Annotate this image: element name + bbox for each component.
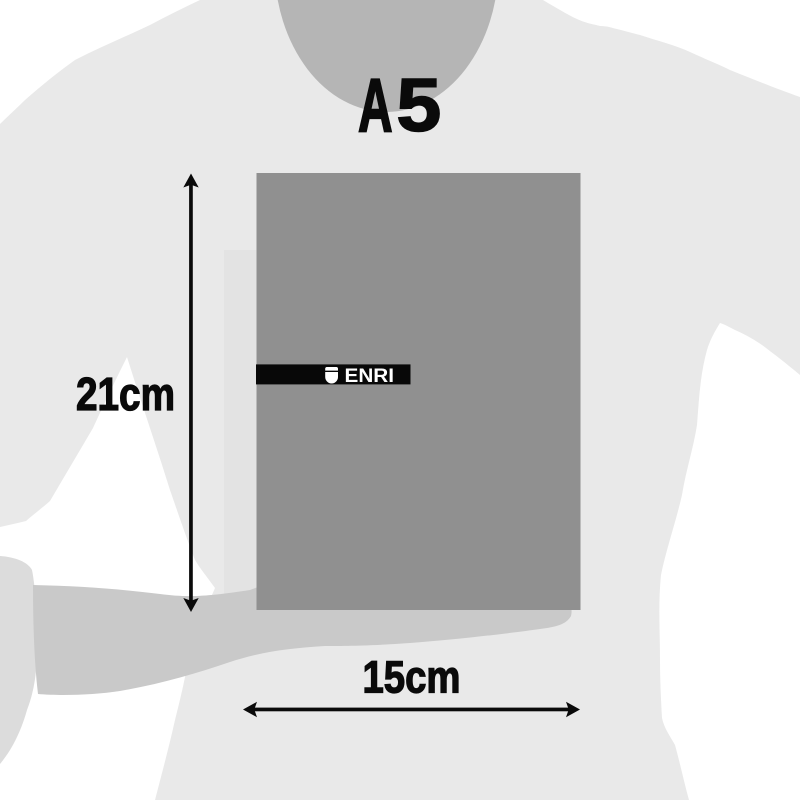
svg-text:ENRI: ENRI <box>345 365 395 387</box>
svg-text:21cm: 21cm <box>76 368 175 420</box>
svg-text:15cm: 15cm <box>363 651 461 702</box>
svg-text:5: 5 <box>396 62 441 147</box>
svg-text:A: A <box>358 64 392 148</box>
